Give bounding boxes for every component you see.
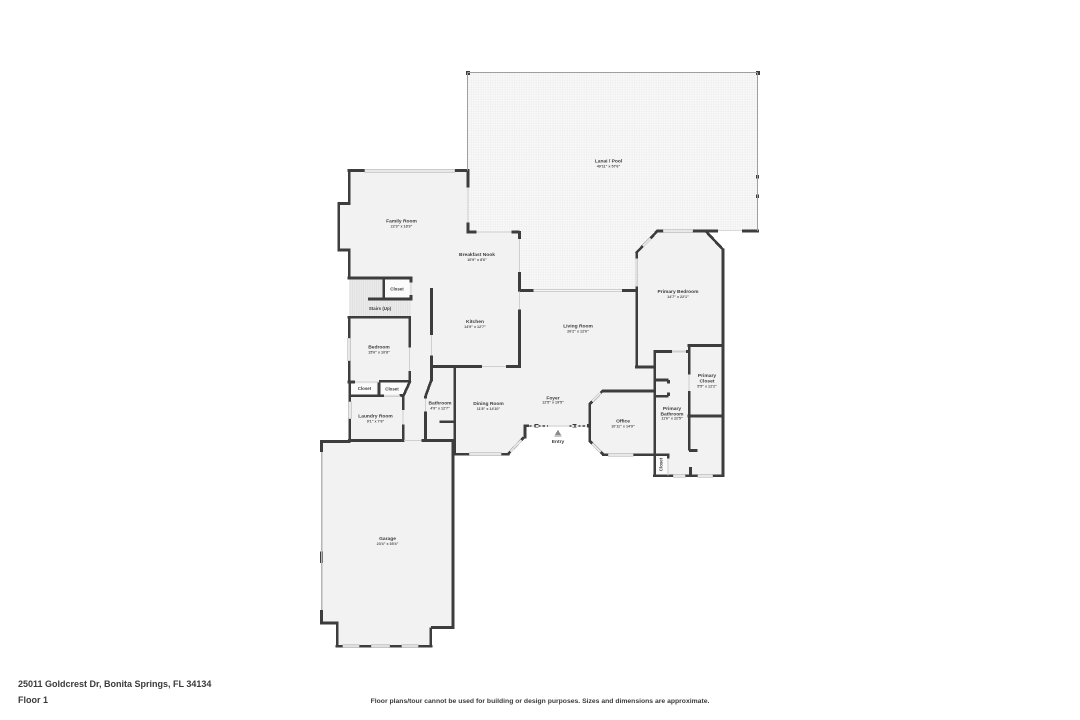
svg-text:11'6" x 22'5": 11'6" x 22'5" xyxy=(661,417,683,421)
svg-text:Closet: Closet xyxy=(385,387,399,392)
svg-text:Primary Bedroom: Primary Bedroom xyxy=(657,289,699,295)
svg-text:Dining Room: Dining Room xyxy=(473,401,504,407)
svg-text:Stairs (Up): Stairs (Up) xyxy=(369,306,392,311)
svg-text:Garage: Garage xyxy=(379,536,396,542)
svg-text:4'9" x 12'7": 4'9" x 12'7" xyxy=(430,407,450,411)
svg-text:11'8" x 14'10": 11'8" x 14'10" xyxy=(477,407,501,411)
svg-text:Closet: Closet xyxy=(390,287,404,292)
svg-text:Primary: Primary xyxy=(663,406,681,412)
svg-text:Bedroom: Bedroom xyxy=(368,345,390,351)
svg-text:Breakfast Nook: Breakfast Nook xyxy=(459,252,495,258)
svg-text:12'5" x 19'5": 12'5" x 19'5" xyxy=(542,401,564,405)
svg-text:Living Room: Living Room xyxy=(563,324,593,330)
svg-text:Closet: Closet xyxy=(659,457,664,471)
svg-text:14'9" x 12'7": 14'9" x 12'7" xyxy=(464,325,486,329)
svg-text:22'3" x 18'3": 22'3" x 18'3" xyxy=(391,224,413,228)
svg-text:14'7" x 22'1": 14'7" x 22'1" xyxy=(667,295,689,299)
svg-text:Closet: Closet xyxy=(358,386,372,391)
svg-text:49'11" x 57'6": 49'11" x 57'6" xyxy=(597,165,621,169)
svg-text:10'11" x 14'9": 10'11" x 14'9" xyxy=(611,424,635,428)
svg-text:26'2" x 12'6": 26'2" x 12'6" xyxy=(567,330,589,334)
svg-text:Primary: Primary xyxy=(698,373,716,379)
svg-text:Entry: Entry xyxy=(552,439,565,445)
svg-text:10'9" x 8'6": 10'9" x 8'6" xyxy=(467,258,487,262)
svg-text:23'4" x 35'4": 23'4" x 35'4" xyxy=(377,542,399,546)
svg-text:9'1" x 7'6": 9'1" x 7'6" xyxy=(367,420,385,424)
svg-text:15'6" x 10'8": 15'6" x 10'8" xyxy=(368,351,390,355)
svg-text:Kitchen: Kitchen xyxy=(466,319,484,325)
svg-text:5'5" x 12'2": 5'5" x 12'2" xyxy=(697,384,717,388)
